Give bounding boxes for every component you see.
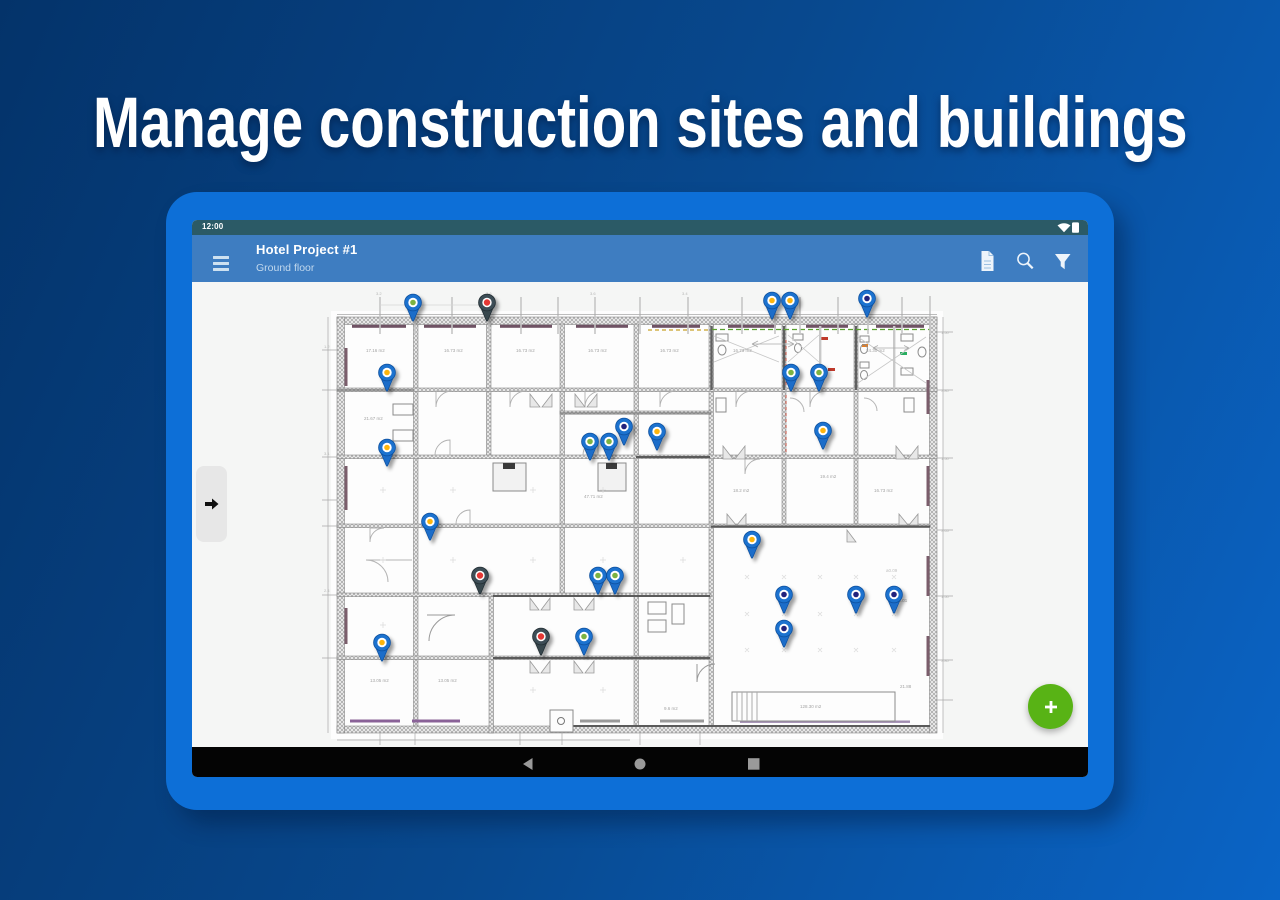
svg-text:1.50: 1.50	[941, 456, 950, 461]
svg-text:1.50: 1.50	[941, 330, 950, 335]
svg-text:21.67 m2: 21.67 m2	[364, 416, 383, 421]
svg-text:9.6 m2: 9.6 m2	[664, 706, 678, 711]
svg-text:3.1: 3.1	[324, 451, 330, 456]
svg-text:16.73 m2: 16.73 m2	[588, 348, 607, 353]
svg-text:3.80: 3.80	[941, 658, 950, 663]
svg-text:1.2: 1.2	[324, 344, 330, 349]
svg-text:16.73 m2: 16.73 m2	[733, 348, 752, 353]
svg-text:16.73 m2: 16.73 m2	[874, 488, 893, 493]
svg-text:17.16 m2: 17.16 m2	[366, 348, 385, 353]
svg-text:19.4 m2: 19.4 m2	[820, 474, 837, 479]
svg-text:3.6: 3.6	[590, 291, 596, 296]
svg-text:13.05 m2: 13.05 m2	[438, 678, 457, 683]
svg-text:1.50: 1.50	[941, 594, 950, 599]
svg-text:21.88: 21.88	[900, 684, 912, 689]
svg-text:13.05 m2: 13.05 m2	[370, 678, 389, 683]
svg-text:24.30 m2: 24.30 m2	[866, 348, 885, 353]
svg-text:16.73 m2: 16.73 m2	[516, 348, 535, 353]
svg-text:47.71 m2: 47.71 m2	[584, 494, 603, 499]
svg-text:a0.09: a0.09	[886, 568, 898, 573]
svg-text:128.30 m2: 128.30 m2	[800, 704, 822, 709]
svg-text:18.2 m2: 18.2 m2	[733, 488, 750, 493]
svg-text:3.65: 3.65	[941, 528, 950, 533]
svg-text:2.4: 2.4	[324, 588, 330, 593]
svg-text:16.73 m2: 16.73 m2	[660, 348, 679, 353]
svg-text:3.2: 3.2	[376, 291, 382, 296]
svg-text:3.4: 3.4	[682, 291, 688, 296]
svg-text:3.80: 3.80	[941, 388, 950, 393]
svg-text:16.73 m2: 16.73 m2	[444, 348, 463, 353]
